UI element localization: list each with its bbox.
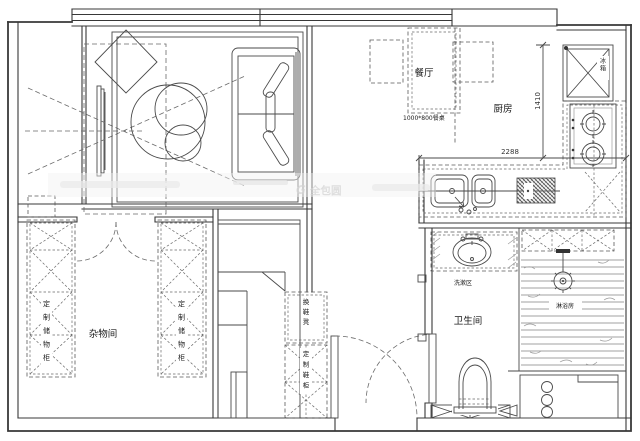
shower-top-cabinet (522, 230, 614, 251)
vanity (431, 232, 517, 271)
kitchen-sink (431, 175, 495, 214)
kitchen: 厨房 (416, 42, 629, 217)
counter-hatch-block (517, 178, 555, 203)
tv-sight-lines (25, 76, 245, 186)
shower-label: 淋浴房 (556, 302, 574, 310)
bathroom-label: 卫生间 (454, 315, 483, 327)
floor-plan: 餐厅 1000*800餐桌 厨房 (0, 0, 640, 441)
corner-cabinet (585, 172, 620, 212)
side-table-diamond (95, 30, 157, 93)
shower-area: 淋浴房 (519, 228, 624, 371)
dining-chair-right (453, 42, 493, 82)
svg-text:1410: 1410 (534, 92, 542, 110)
dining-table-label: 1000*800餐桌 (403, 114, 445, 122)
storage-double-door (77, 222, 155, 261)
entry-area: 换鞋凳 定制鞋柜 (218, 220, 417, 418)
watermark-logo: G (296, 183, 306, 197)
exterior-walls (8, 9, 631, 431)
top-window (72, 9, 631, 30)
staircase (218, 220, 300, 418)
kitchen-label: 厨房 (493, 103, 512, 115)
wash-area-label: 洗漱区 (454, 279, 472, 287)
svg-text:2288: 2288 (501, 148, 519, 156)
entry-door (331, 336, 417, 418)
dining-label: 餐厅 (414, 67, 434, 79)
fridge-label: 冰箱 (600, 57, 606, 73)
floor-plan-canvas: 餐厅 1000*800餐桌 厨房 (0, 0, 640, 441)
storage-cabinet-right: 定制储物柜 (158, 220, 206, 377)
shoe-cabinet: 定制鞋柜 (285, 345, 327, 418)
fridge: 冰箱 (563, 45, 613, 101)
watermark-brand: 全包圆 (309, 184, 342, 197)
dimension-2288: 2288 (416, 148, 629, 161)
storage-cabinet-left: 定制储物柜 (27, 220, 75, 377)
bathroom-door (366, 334, 436, 403)
dining-chair-left (370, 40, 403, 83)
sofa (232, 48, 300, 180)
storage-room: 杂物间 定制储物柜 定制储物柜 (27, 196, 206, 377)
corner-shelf (500, 371, 626, 418)
storage-label: 杂物间 (89, 328, 118, 340)
bathroom: 卫生间 洗漱区 (366, 228, 626, 418)
dimension-1410: 1410 (534, 42, 550, 161)
watermark: G 全包圆 (48, 173, 436, 197)
dining-area: 餐厅 1000*800餐桌 (370, 28, 493, 145)
shoe-bench-label: 换鞋凳 (303, 297, 310, 326)
shoe-bench: 换鞋凳 (285, 292, 327, 343)
wall-stub (28, 196, 55, 217)
toilet-icon (452, 355, 498, 415)
